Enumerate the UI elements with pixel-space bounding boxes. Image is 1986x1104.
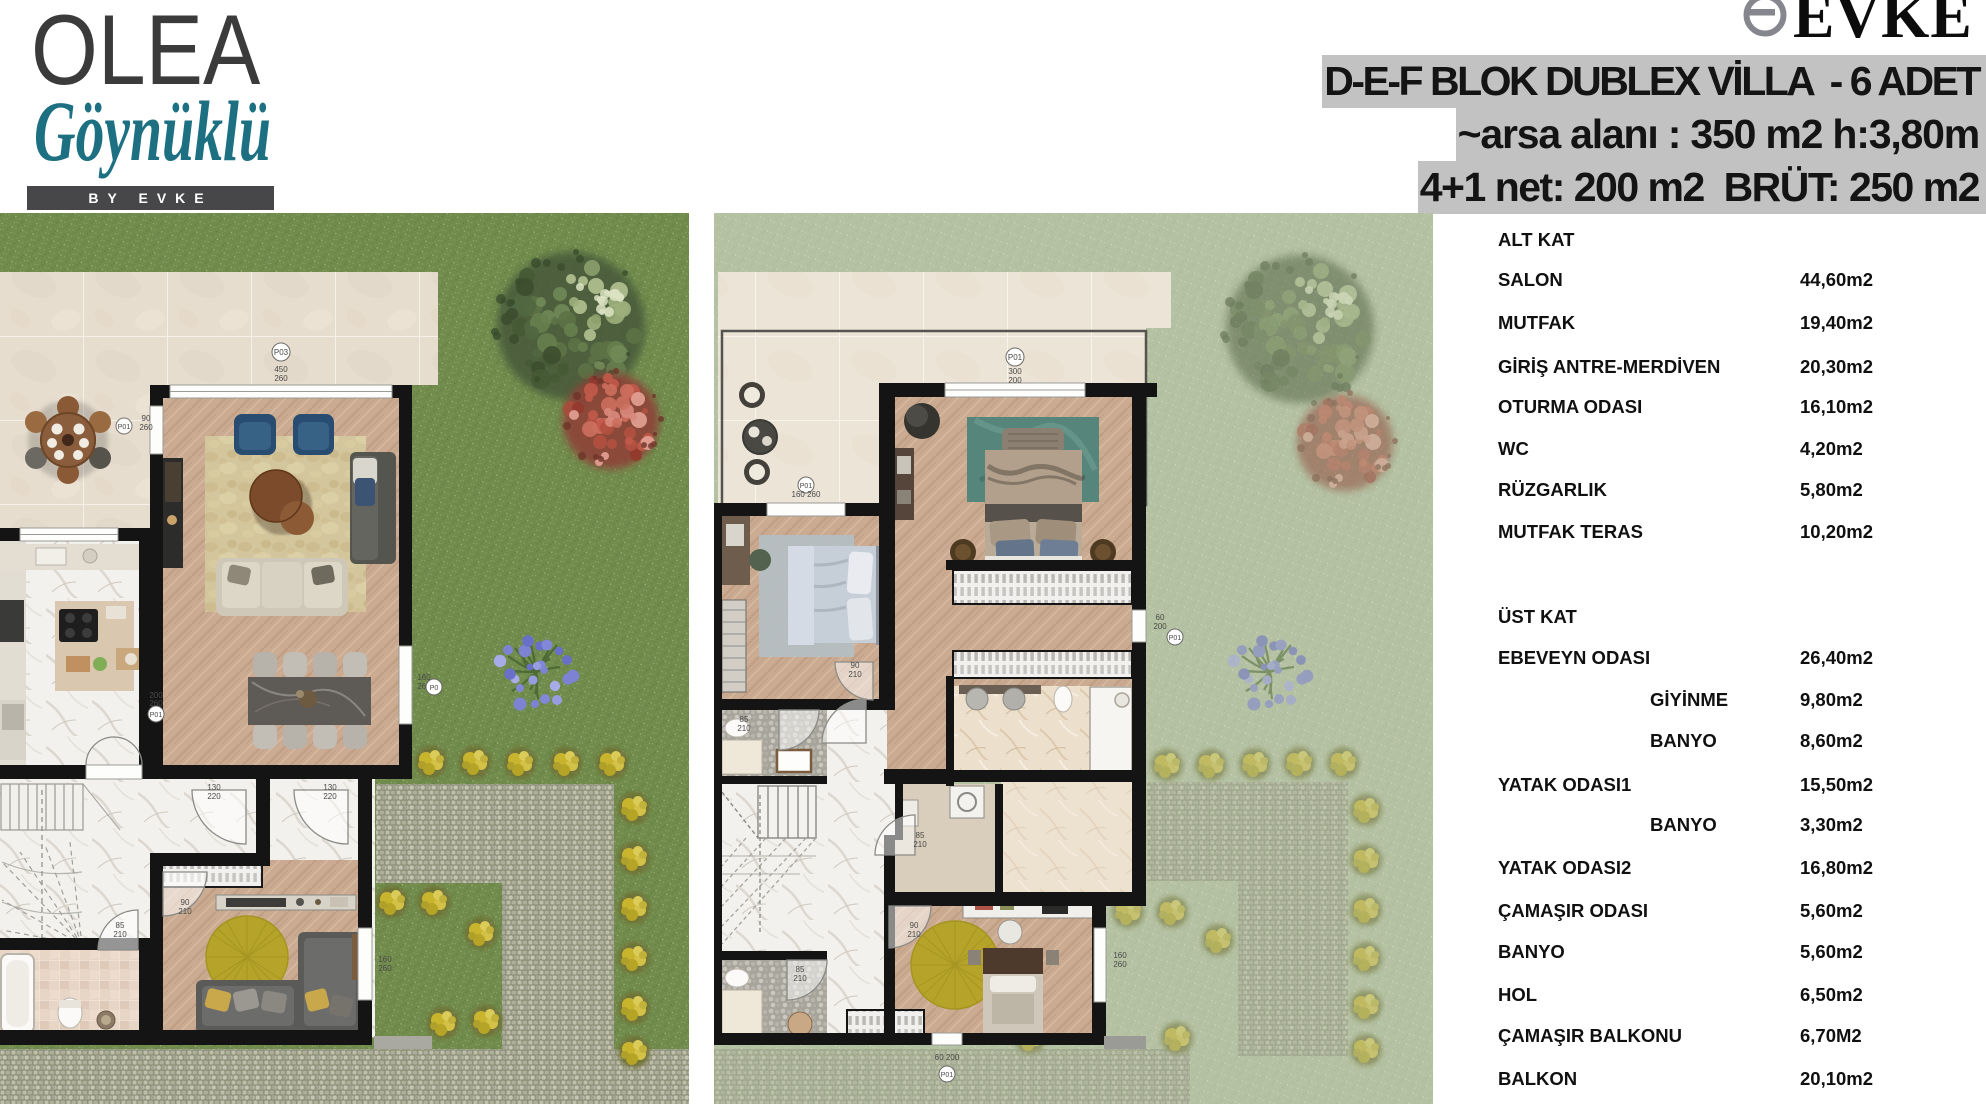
- svg-text:210: 210: [113, 930, 127, 939]
- svg-text:200: 200: [1153, 622, 1167, 631]
- svg-text:85: 85: [116, 921, 125, 930]
- svg-text:60 200: 60 200: [935, 1053, 960, 1062]
- svg-text:60: 60: [1156, 613, 1165, 622]
- svg-text:160: 160: [378, 955, 392, 964]
- svg-text:450: 450: [274, 365, 288, 374]
- svg-text:P01: P01: [941, 1072, 954, 1079]
- svg-text:210: 210: [737, 724, 751, 733]
- svg-text:P0: P0: [430, 685, 439, 692]
- svg-text:90: 90: [181, 898, 190, 907]
- svg-text:90: 90: [910, 921, 919, 930]
- svg-text:260: 260: [274, 374, 288, 383]
- svg-text:85: 85: [740, 715, 749, 724]
- svg-text:P01: P01: [1008, 353, 1023, 362]
- svg-text:P01: P01: [150, 712, 163, 719]
- svg-text:220: 220: [323, 792, 337, 801]
- svg-text:160 260: 160 260: [792, 490, 821, 499]
- svg-text:260: 260: [139, 423, 153, 432]
- svg-text:EVKE: EVKE: [1793, 0, 1973, 46]
- svg-text:210: 210: [793, 974, 807, 983]
- svg-text:210: 210: [178, 907, 192, 916]
- svg-text:160: 160: [1113, 951, 1127, 960]
- svg-text:260: 260: [149, 699, 163, 708]
- svg-text:90: 90: [142, 414, 151, 423]
- svg-text:300: 300: [1008, 367, 1022, 376]
- svg-text:85: 85: [796, 965, 805, 974]
- svg-text:260: 260: [378, 964, 392, 973]
- svg-text:200: 200: [1008, 376, 1022, 385]
- svg-text:85: 85: [916, 831, 925, 840]
- svg-text:P03: P03: [274, 348, 289, 357]
- svg-text:220: 220: [207, 792, 221, 801]
- svg-text:P01: P01: [1169, 635, 1182, 642]
- svg-text:260: 260: [1113, 960, 1127, 969]
- svg-text:210: 210: [907, 930, 921, 939]
- svg-text:130: 130: [323, 783, 337, 792]
- svg-text:90: 90: [851, 661, 860, 670]
- svg-text:210: 210: [913, 840, 927, 849]
- svg-text:130: 130: [207, 783, 221, 792]
- svg-text:210: 210: [848, 670, 862, 679]
- svg-text:P01: P01: [118, 424, 131, 431]
- svg-text:P01: P01: [800, 483, 813, 490]
